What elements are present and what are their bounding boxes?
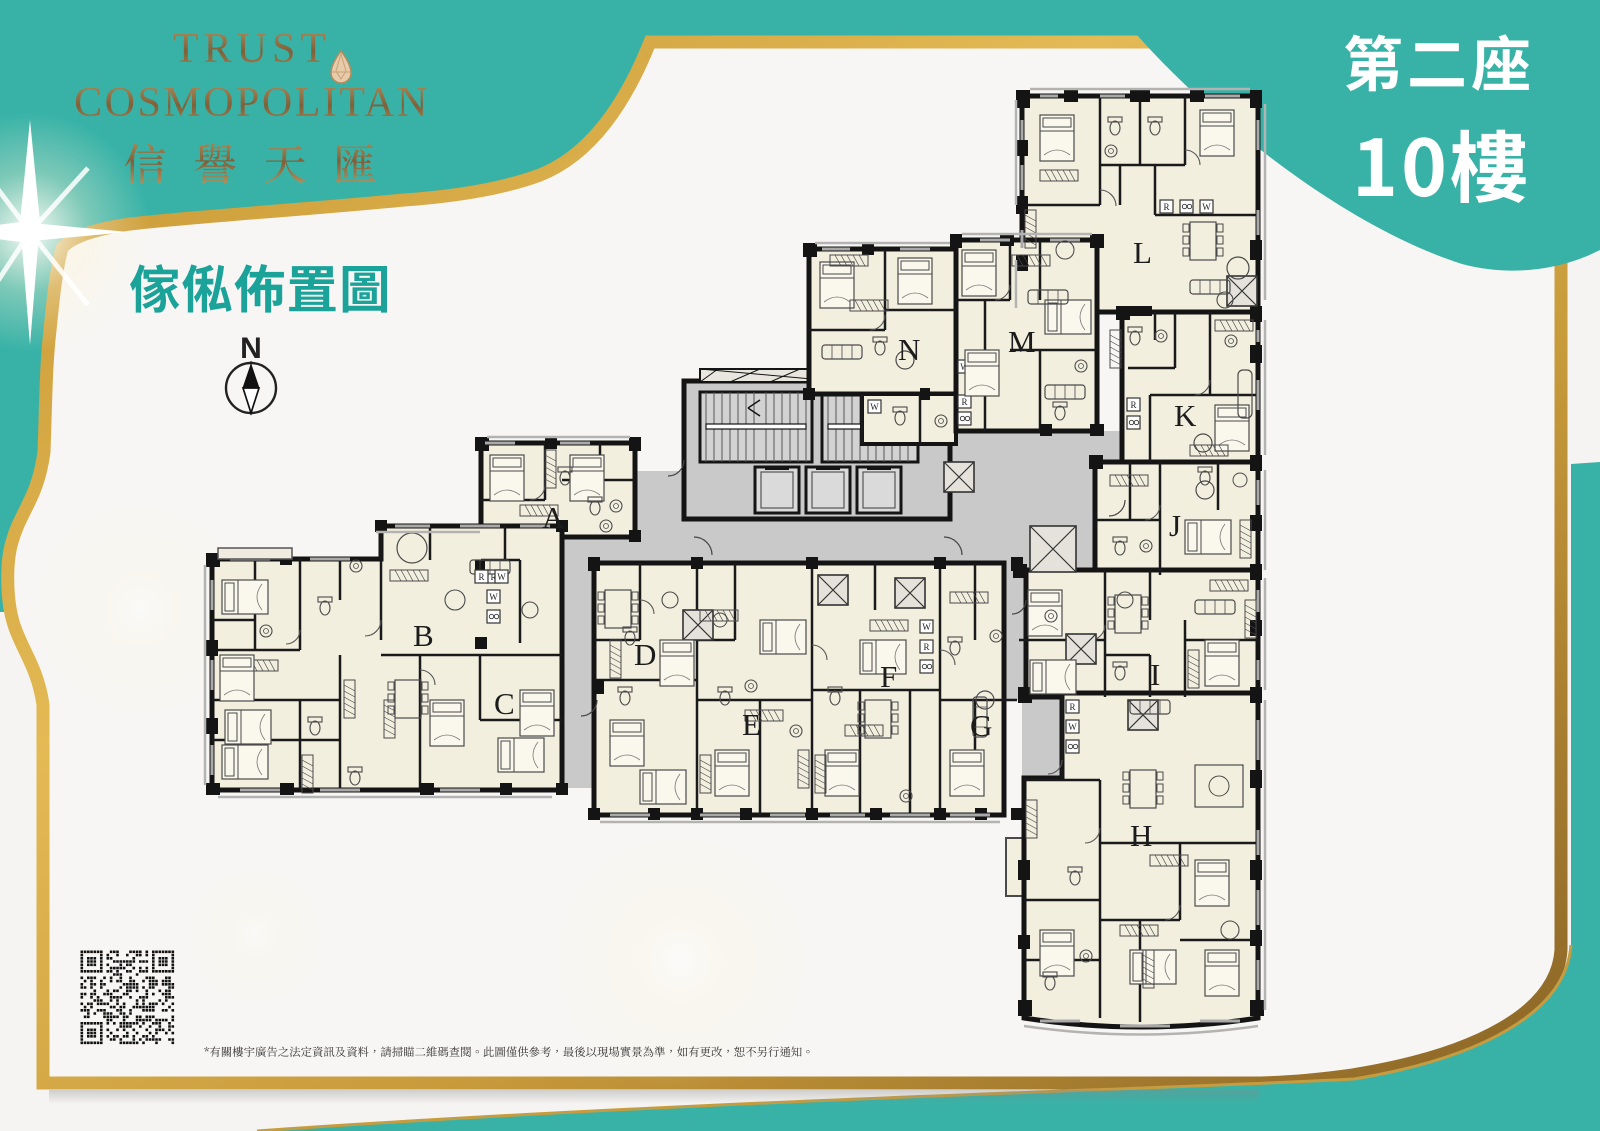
svg-text:N: N: [240, 332, 262, 365]
svg-text:L: L: [1133, 235, 1152, 270]
svg-text:D: D: [634, 637, 656, 672]
svg-text:F: F: [880, 659, 897, 694]
svg-text:H: H: [1130, 818, 1152, 853]
svg-text:J: J: [1169, 508, 1181, 543]
svg-text:A: A: [542, 500, 565, 535]
svg-text:K: K: [1174, 398, 1197, 433]
svg-text:TRUST: TRUST: [173, 26, 331, 72]
svg-text:COSMOPOLITAN: COSMOPOLITAN: [74, 80, 430, 126]
svg-text:E: E: [742, 707, 761, 742]
svg-text:B: B: [413, 618, 434, 653]
svg-text:G: G: [970, 708, 992, 743]
svg-text:I: I: [1150, 657, 1160, 692]
svg-text:M: M: [1008, 324, 1036, 359]
svg-text:C: C: [494, 686, 515, 721]
svg-text:N: N: [898, 332, 920, 367]
